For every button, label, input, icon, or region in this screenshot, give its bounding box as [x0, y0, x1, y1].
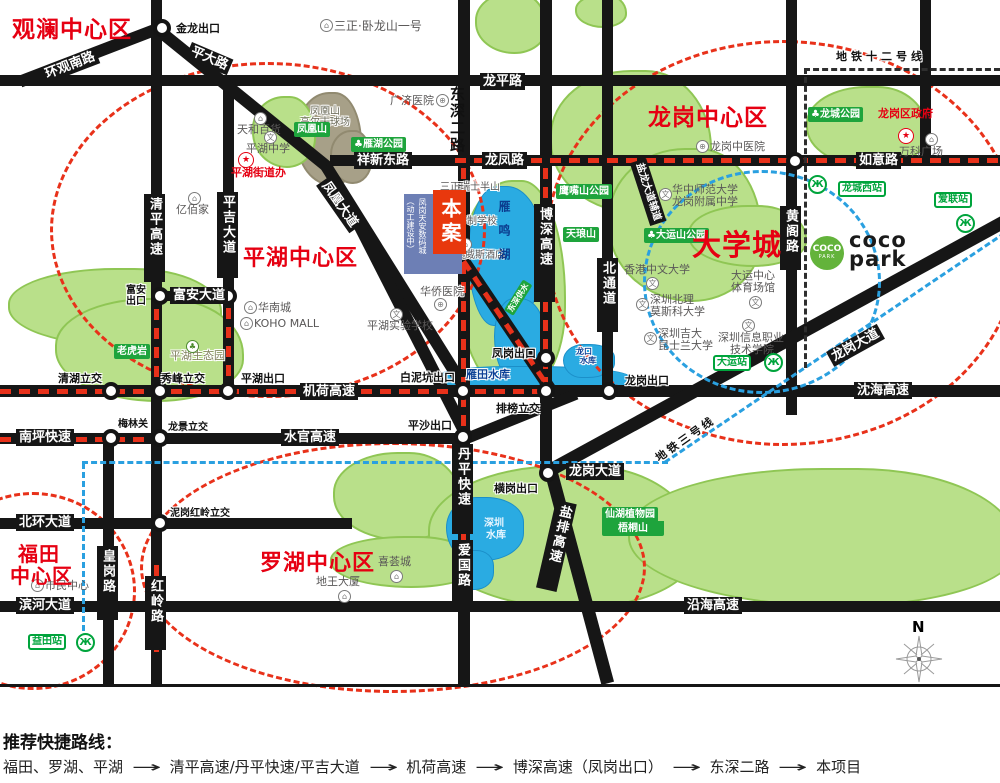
hospital-icon: ⊕: [696, 140, 709, 153]
coco-park-wordmark: coco park: [849, 231, 907, 269]
exit-xiufeng: 秀峰立交: [161, 370, 205, 386]
exit-qinghu: 清湖立交: [58, 370, 102, 386]
poi-pinghu-zhongxue: 平湖中学: [246, 143, 290, 155]
road-label-yanhai: 沿海高速: [684, 597, 742, 614]
road-label-xiangxin: 祥新东路: [354, 152, 412, 169]
poi-huanancheng: 华南城: [258, 302, 291, 314]
junction-longgang-exit: [600, 382, 618, 400]
exit-meilinguan: 梅林关: [118, 415, 148, 430]
poi-beili-line2: 莫斯科大学: [650, 306, 705, 318]
road-label-fuan: 富安大道: [170, 287, 228, 304]
junction-meilinguan: [151, 429, 169, 447]
exit-nigang: 泥岗红岭立交: [170, 504, 230, 519]
road-shuiguan-link: [463, 389, 578, 444]
tree-icon: ♣: [647, 230, 656, 241]
junction-jinlong: [153, 19, 171, 37]
poi-huazhong-line2: 龙岗附属中学: [672, 196, 738, 208]
poi-longgang-zhongyiyuan: 龙岗中医院: [710, 141, 765, 153]
metro-icon: Ж: [808, 175, 827, 194]
tree-icon: ♣: [354, 139, 363, 150]
road-label-longgang-avenue-h: 龙岗大道: [566, 463, 624, 480]
hill-top-center-2: [575, 0, 627, 28]
junction-fenggang-exit: [537, 349, 555, 367]
exit-jinlong: 金龙出口: [176, 20, 220, 36]
station-longchengxi: 龙城西站: [838, 181, 886, 197]
building-icon: ⌂: [390, 570, 403, 583]
exit-henggang: 横岗出口: [494, 480, 538, 496]
poi-sanzheng-wolongshan: 三正·卧龙山一号: [334, 20, 422, 32]
poi-guangji-hospital: 广济医院: [390, 95, 434, 107]
school-icon: 文: [636, 298, 649, 311]
badge-xianhu-line2: 梧桐山: [602, 521, 664, 536]
location-map: 观澜中心区 龙岗中心区 平湖中心区 大学城 福田 中心区 罗湖中心区 龙平路 祥…: [0, 0, 1000, 783]
badge-longcheng-park: ♣龙城公园: [808, 107, 863, 122]
coco-logo-top: COCO: [810, 244, 844, 254]
badge-yanhu-park: ♣雁湖公园: [351, 137, 406, 152]
route-arrow-icon: →: [671, 758, 701, 776]
district-guanlan: 观澜中心区: [12, 10, 132, 44]
poi-hk-chinese-university: 香港中文大学: [624, 264, 690, 276]
district-longgang: 龙岗中心区: [648, 98, 768, 132]
poi-wanke-guangchang: 万科广场: [899, 146, 943, 158]
road-label-qingping: 清平高速: [144, 194, 165, 282]
exit-pailou: 排榜立交: [496, 400, 540, 416]
exit-fenggang: 凤岗出口: [492, 345, 536, 361]
exit-bainikeng: 白泥坑出口: [400, 369, 455, 385]
exit-fuan-line2: 出口: [126, 292, 146, 307]
poi-xihuicheng: 喜荟城: [378, 556, 411, 568]
lake-label-longkou-2: 水库: [580, 355, 596, 366]
route-seg-4: 东深二路: [709, 758, 769, 776]
route-seg-destination: 本项目: [816, 758, 861, 776]
station-dayun: 大运站: [713, 355, 751, 371]
junction-bainikeng: [454, 382, 472, 400]
metro-icon: Ж: [76, 633, 95, 652]
poi-huaqiao-hospital: 华侨医院: [420, 286, 464, 298]
district-pinghu: 平湖中心区: [243, 240, 358, 272]
poi-pinghu-eco-park: 平湖生态园: [170, 350, 225, 362]
building-icon: ⌂: [338, 590, 351, 603]
junction-nigang: [151, 514, 169, 532]
road-label-shenhai: 沈海高速: [854, 382, 912, 399]
government-star-icon: ★: [898, 128, 914, 144]
junction-ruyi: [786, 152, 804, 170]
road-label-dongshen: 东深二路: [447, 86, 468, 164]
road-label-huanggang: 皇岗路: [97, 546, 118, 620]
coco-logo-bottom: PARK: [810, 254, 844, 260]
coco-park-logo-icon: COCO PARK: [810, 236, 844, 270]
road-label-ruyi: 如意路: [856, 152, 901, 169]
poi-yibaijia: 亿佰家: [176, 204, 209, 216]
school-icon: 文: [644, 332, 657, 345]
lake-label-yantian: 雁田水库: [466, 366, 510, 382]
badge-laohuyan: 老虎岩: [114, 344, 150, 359]
metro12-label: 地铁十二号线: [836, 48, 926, 64]
route-seg-3: 博深高速（凤岗出口）: [513, 758, 663, 776]
route-panel: 推荐快捷路线： 福田、罗湖、平湖→清平高速/丹平快速/平吉大道→机荷高速→博深高…: [0, 710, 1000, 783]
route-line: 福田、罗湖、平湖→清平高速/丹平快速/平吉大道→机荷高速→博深高速（凤岗出口）→…: [3, 756, 861, 777]
junction-longgang-avenue: [539, 464, 557, 482]
poi-dayun-center-line2: 体育场馆: [731, 282, 775, 294]
badge-xianhu-line1: 仙湖植物园: [602, 507, 658, 522]
hill-top-center-1: [475, 0, 547, 54]
road-label-longping: 龙平路: [480, 73, 525, 90]
route-seg-origin: 福田、罗湖、平湖: [3, 758, 123, 776]
hospital-icon: ⊕: [434, 298, 447, 311]
road-label-beitongdao: 北通道: [597, 258, 618, 332]
poi-koho-mall: KOHO MALL: [254, 318, 319, 330]
road-label-hongling: 红岭路: [145, 576, 166, 650]
exit-pingsha: 平沙出口: [408, 417, 452, 433]
station-yitian: 益田站: [28, 634, 66, 650]
badge-tianlangshan: 天琅山: [563, 227, 599, 242]
school-icon: 文: [749, 296, 762, 309]
map-canvas: 观澜中心区 龙岗中心区 平湖中心区 大学城 福田 中心区 罗湖中心区 龙平路 祥…: [0, 0, 1000, 710]
route-dash-pingji: [226, 308, 231, 388]
road-label-nanping: 南坪快速: [16, 429, 74, 446]
hill-wutongshan-3: [628, 468, 1000, 607]
route-arrow-icon: →: [131, 758, 161, 776]
poi-longgang-quzhengfu: 龙岗区政府: [878, 108, 933, 120]
road-label-beihuan: 北环大道: [16, 514, 74, 531]
road-label-huangge: 黄阁路: [780, 206, 801, 270]
junction-pinghu-exit: [219, 382, 237, 400]
station-ailian: 爱联站: [934, 192, 972, 208]
project-tianan-col2: 凤岗天安数码城: [417, 198, 427, 254]
route-arrow-icon: →: [778, 758, 808, 776]
junction-qinghu: [102, 382, 120, 400]
route-seg-2: 机荷高速: [406, 758, 466, 776]
lake-label-shenzhen-2: 水库: [486, 526, 506, 541]
road-label-danping: 丹平快速: [452, 444, 473, 534]
route-seg-1: 清平高速/丹平快速/平吉大道: [170, 758, 360, 776]
road-label-longfeng: 龙凤路: [482, 152, 527, 169]
building-icon: ⌂: [240, 317, 253, 330]
road-label-aiguo: 爱国路: [452, 540, 473, 610]
metro12-horizontal: [804, 68, 1000, 71]
school-icon: 文: [646, 277, 659, 290]
route-dash-longfeng: [455, 158, 1000, 163]
road-label-jihe: 机荷高速: [300, 383, 358, 400]
exit-pinghu: 平湖出口: [241, 370, 285, 386]
road-label-binhe: 滨河大道: [16, 597, 74, 614]
tree-icon: ♣: [186, 340, 199, 353]
school-icon: 文: [659, 188, 672, 201]
district-luohu: 罗湖中心区: [260, 545, 375, 577]
road-label-pingji: 平吉大道: [217, 192, 238, 278]
badge-yingzuishan-park: 鹰嘴山公园: [556, 184, 612, 199]
poi-pinghu-shiyan-school: 平湖实验学校: [367, 320, 433, 332]
exit-longgang: 龙岗出口: [625, 372, 669, 388]
map-frame-bottom: [0, 684, 1000, 687]
metro-icon: Ж: [764, 353, 783, 372]
exit-longjing: 龙景立交: [168, 418, 208, 433]
metro12-vertical: [804, 68, 807, 368]
metro3-vertical: [82, 463, 85, 640]
tree-icon: ♣: [811, 109, 820, 120]
junction-boshen-jihe: [537, 382, 555, 400]
poi-diwang-dasha: 地王大厦: [316, 576, 360, 588]
project-marker: 本案: [433, 190, 466, 254]
junction-nanping-huanggang: [102, 429, 120, 447]
route-arrow-icon: →: [368, 758, 398, 776]
building-icon: ⌂: [320, 19, 333, 32]
hospital-icon: ⊕: [436, 94, 449, 107]
metro-icon: Ж: [956, 214, 975, 233]
compass-icon: [894, 634, 944, 684]
building-icon: ⌂: [244, 301, 257, 314]
road-label-boshen: 博深高速: [534, 204, 555, 302]
junction-fuan-exit: [151, 287, 169, 305]
route-arrow-icon: →: [474, 758, 504, 776]
district-daxuecheng: 大学城: [692, 222, 782, 264]
route-title: 推荐快捷路线：: [3, 728, 122, 753]
poi-jida-line2: 昆士兰大学: [658, 340, 713, 352]
poi-pinghu-jiedaoban: 平湖街道办: [231, 167, 286, 179]
government-star-icon: ★: [238, 152, 254, 168]
project-tianan-col1: （动工建设中）: [405, 197, 415, 253]
lake-label-yanminghu: 雁鸣湖: [496, 200, 513, 272]
road-label-shuiguan: 水官高速: [281, 429, 339, 446]
badge-fenghuangshan: 凤凰山: [294, 122, 330, 137]
district-futian-line2: 中心区: [10, 560, 73, 589]
